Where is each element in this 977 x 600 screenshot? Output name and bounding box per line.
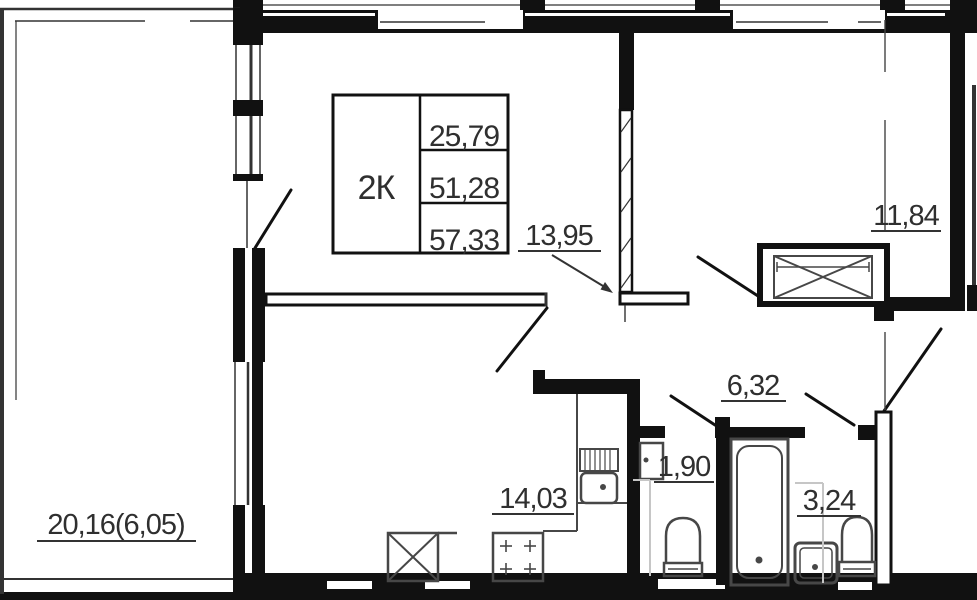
hallway-label: 6,32 <box>721 370 786 402</box>
toilet-top-wall <box>633 426 665 438</box>
toilet-room-wc <box>664 518 702 576</box>
living-area-value: 25,79 <box>429 120 499 153</box>
bathroom-wc <box>839 517 875 576</box>
bathroom-label: 3,24 <box>797 485 861 517</box>
svg-text:3,24: 3,24 <box>803 485 856 517</box>
info-table: 2К 25,79 51,28 57,33 <box>333 95 508 257</box>
svg-text:13,95: 13,95 <box>525 220 593 252</box>
kitchen-door <box>497 308 547 371</box>
living-bedroom-wall <box>619 33 688 322</box>
living-kitchen-wall <box>266 293 546 306</box>
apartment-type-label: 2К <box>358 169 396 207</box>
wardrobe <box>760 246 887 304</box>
kitchen-hall-partition <box>533 370 640 580</box>
balcony-label: 20,16(6,05) <box>37 509 196 541</box>
bedroom-window <box>733 10 885 29</box>
floor-plan-drawing: 2К 25,79 51,28 57,33 13,95 11,84 6,32 14… <box>0 0 977 600</box>
svg-text:14,03: 14,03 <box>499 483 567 515</box>
total-area-value: 57,33 <box>429 224 499 257</box>
entrance-door <box>884 329 941 411</box>
bathroom-right-wall <box>858 412 891 585</box>
balcony-glazing <box>0 8 240 594</box>
living-room-label: 13,95 <box>518 220 613 293</box>
svg-text:20,16(6,05): 20,16(6,05) <box>47 509 184 541</box>
bedroom-door <box>698 257 758 296</box>
svg-text:6,32: 6,32 <box>727 370 779 402</box>
bedroom-label: 11,84 <box>871 200 941 232</box>
living-room-window <box>378 10 523 29</box>
bathtub <box>731 439 788 585</box>
svg-text:11,84: 11,84 <box>873 200 939 232</box>
toilet-label: 1,90 <box>654 451 714 483</box>
floor-plan-page: 2К 25,79 51,28 57,33 13,95 11,84 6,32 14… <box>0 0 977 600</box>
kitchen-label: 14,03 <box>492 483 574 515</box>
kitchen-sink <box>580 449 618 503</box>
svg-text:1,90: 1,90 <box>658 451 710 483</box>
apartment-area-value: 51,28 <box>429 172 499 205</box>
left-exterior-wall <box>233 8 265 593</box>
right-exterior-wall <box>950 8 977 311</box>
balcony-door <box>255 190 291 248</box>
bathroom-door <box>806 394 854 425</box>
toilet-door <box>671 396 715 425</box>
